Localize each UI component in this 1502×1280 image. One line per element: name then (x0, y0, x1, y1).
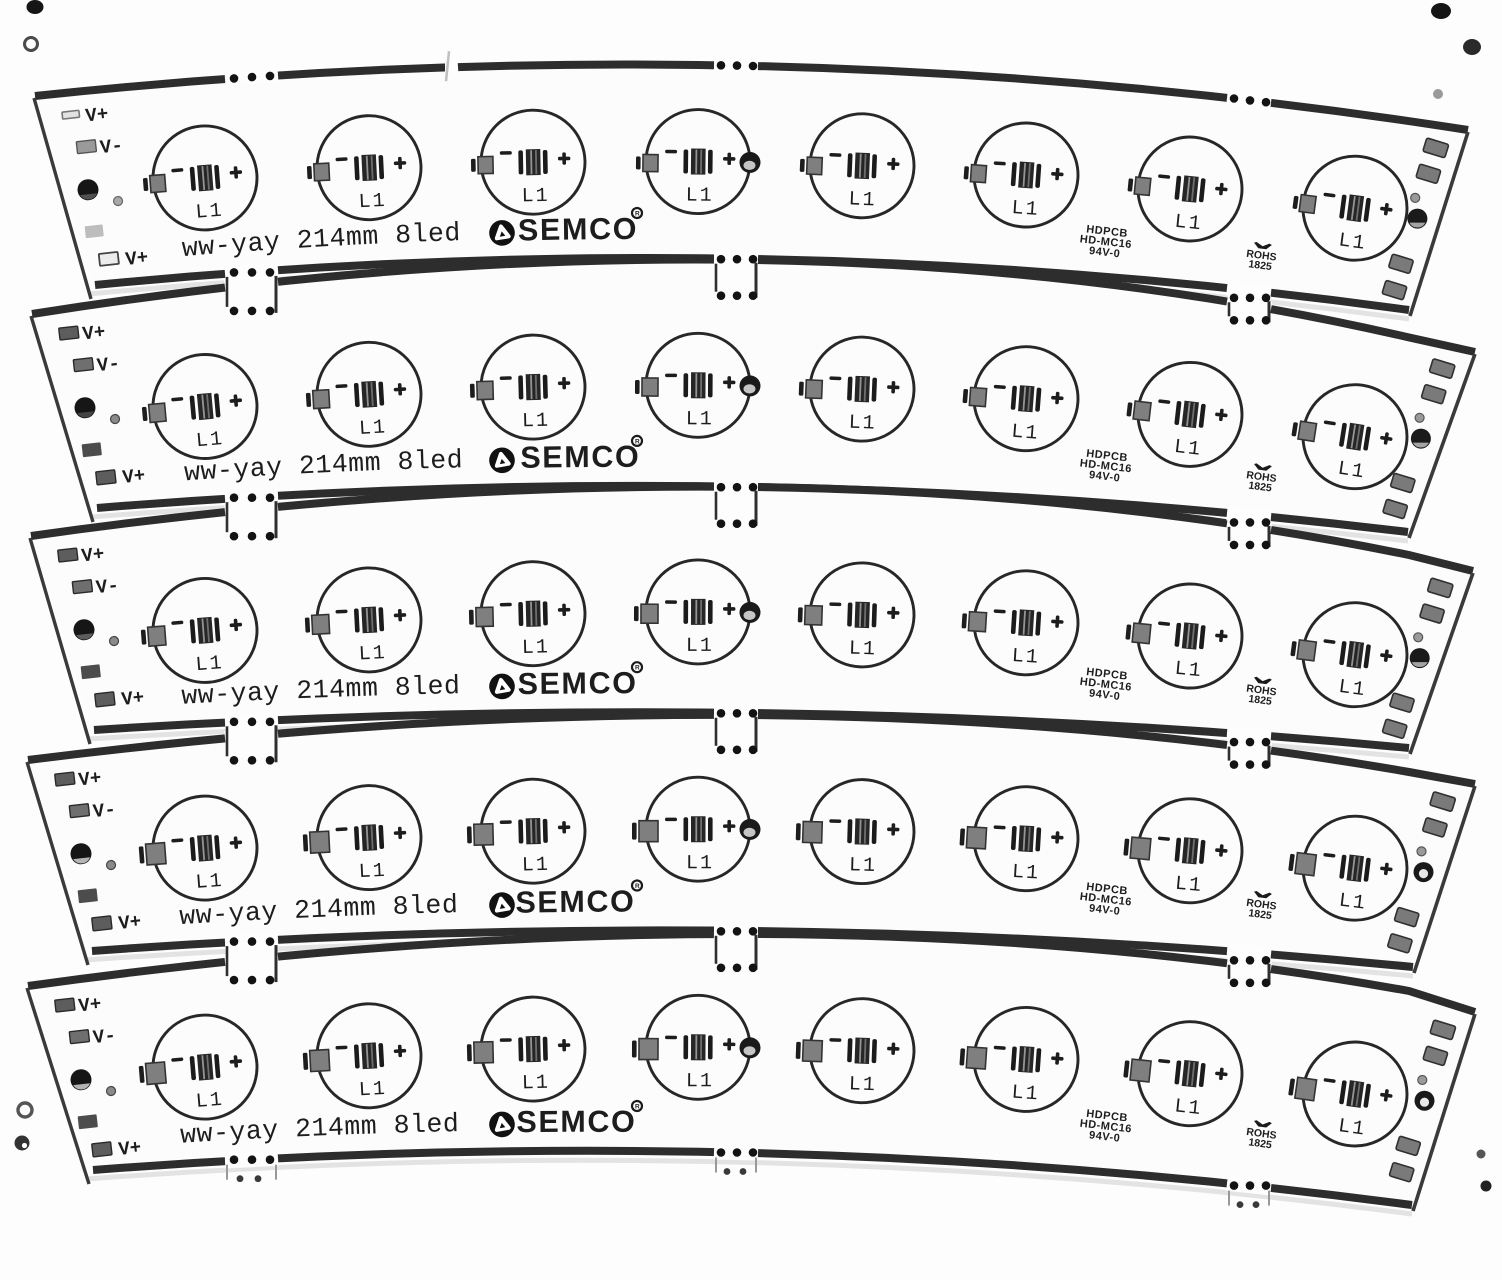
svg-text:SEMCO: SEMCO (518, 212, 638, 247)
svg-text:L1: L1 (1011, 1082, 1041, 1107)
svg-text:L1: L1 (1174, 873, 1204, 898)
svg-text:L1: L1 (1011, 645, 1040, 670)
svg-text:L1: L1 (686, 1070, 714, 1093)
svg-text:V+: V+ (80, 543, 105, 567)
svg-text:L1: L1 (1011, 421, 1041, 446)
svg-text:L1: L1 (1337, 890, 1368, 916)
svg-text:R: R (635, 210, 640, 217)
svg-text:V-: V- (95, 575, 120, 599)
svg-text:L1: L1 (195, 428, 225, 453)
svg-text:R: R (635, 1103, 640, 1110)
svg-text:L1: L1 (848, 412, 877, 436)
svg-text:L1: L1 (848, 637, 877, 661)
svg-text:L1: L1 (1011, 861, 1040, 886)
svg-text:V+: V+ (117, 911, 142, 935)
svg-text:R: R (635, 665, 640, 672)
svg-text:V-: V- (96, 353, 121, 377)
svg-text:L1: L1 (685, 184, 713, 207)
svg-text:L1: L1 (1337, 1115, 1368, 1142)
svg-text:L1: L1 (1173, 1095, 1203, 1121)
svg-text:L1: L1 (522, 1072, 551, 1096)
svg-text:L1: L1 (1173, 436, 1203, 462)
svg-text:L1: L1 (848, 1073, 877, 1097)
svg-text:V+: V+ (117, 1137, 142, 1161)
svg-text:L1: L1 (358, 416, 387, 441)
svg-text:V+: V+ (84, 103, 109, 127)
svg-text:L1: L1 (195, 200, 225, 225)
svg-text:V+: V+ (120, 687, 145, 711)
svg-text:V+: V+ (77, 767, 102, 791)
svg-text:SEMCO: SEMCO (520, 440, 640, 475)
svg-text:L1: L1 (686, 852, 714, 875)
svg-text:L1: L1 (195, 870, 225, 895)
svg-text:L1: L1 (848, 188, 877, 212)
svg-text:L1: L1 (522, 636, 551, 660)
svg-text:L1: L1 (195, 652, 225, 677)
svg-text:V-: V- (92, 799, 117, 823)
svg-text:L1: L1 (686, 408, 714, 431)
svg-text:V+: V+ (77, 993, 102, 1017)
svg-text:L1: L1 (1336, 458, 1367, 485)
svg-text:L1: L1 (521, 185, 549, 209)
svg-text:L1: L1 (358, 860, 387, 884)
svg-text:SEMCO: SEMCO (515, 884, 635, 919)
svg-text:V-: V- (92, 1025, 117, 1049)
svg-text:L1: L1 (1174, 658, 1204, 684)
svg-text:R: R (635, 883, 640, 890)
svg-text:V+: V+ (124, 247, 149, 271)
svg-text:L1: L1 (522, 854, 551, 878)
svg-text:V+: V+ (81, 321, 106, 345)
svg-text:L1: L1 (358, 642, 387, 666)
svg-text:L1: L1 (1011, 197, 1041, 222)
svg-text:L1: L1 (358, 190, 387, 214)
svg-text:SEMCO: SEMCO (517, 666, 637, 701)
svg-text:L1: L1 (686, 635, 714, 658)
svg-text:L1: L1 (1337, 229, 1368, 255)
svg-text:L1: L1 (849, 854, 878, 878)
svg-text:R: R (635, 438, 640, 445)
svg-text:L1: L1 (522, 410, 551, 434)
svg-text:L1: L1 (1337, 676, 1368, 702)
svg-text:V-: V- (99, 135, 124, 159)
svg-text:V+: V+ (121, 465, 146, 489)
svg-text:SEMCO: SEMCO (516, 1105, 636, 1139)
svg-text:L1: L1 (1173, 211, 1203, 237)
svg-text:L1: L1 (195, 1089, 225, 1114)
svg-text:L1: L1 (358, 1078, 387, 1103)
